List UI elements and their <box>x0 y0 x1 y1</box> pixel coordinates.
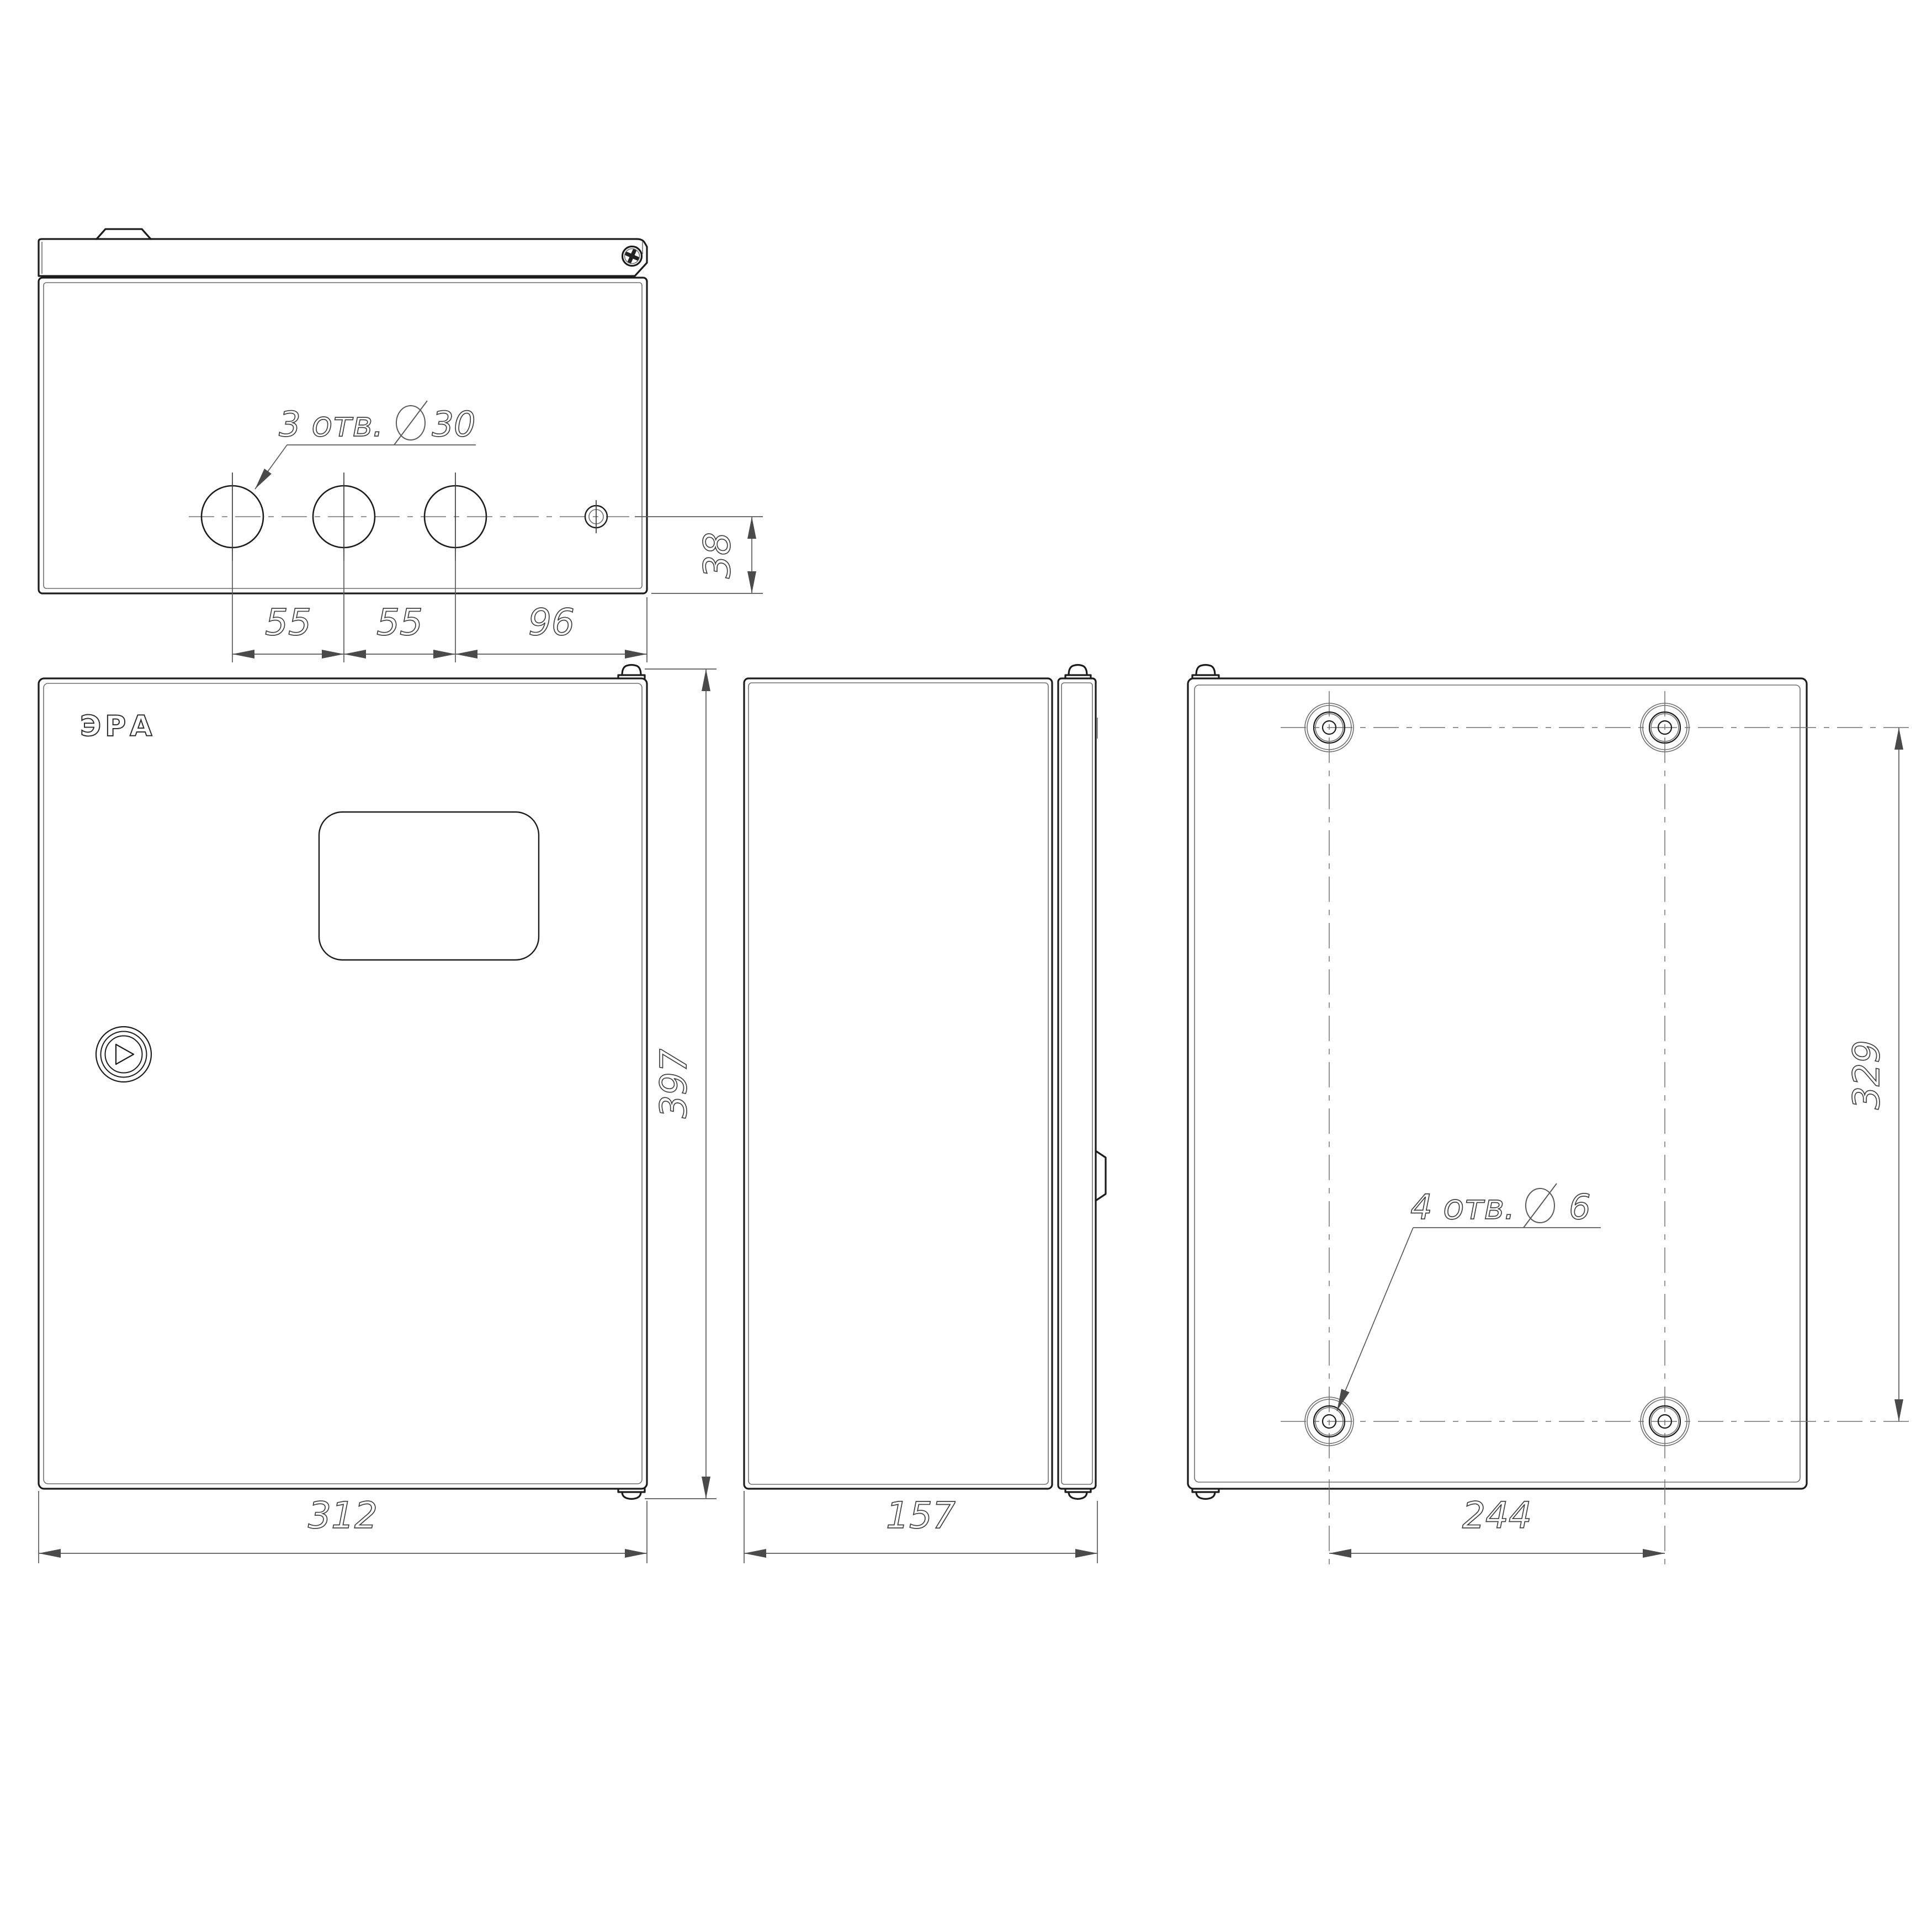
back-panel <box>1188 678 1807 1489</box>
side-door-leaf <box>1058 678 1096 1489</box>
back-hinge-foot-bottom <box>1192 1489 1219 1499</box>
front-door-panel-inner <box>44 683 642 1484</box>
door-handle <box>1096 1151 1106 1201</box>
back-panel-inner <box>1195 685 1800 1482</box>
diameter-symbol-icon <box>394 401 427 445</box>
dim-hole-row-offset: 38 <box>635 517 763 593</box>
dim-side-depth: 157 <box>744 1491 1097 1563</box>
back-hinge-knob-top <box>1192 665 1219 679</box>
diameter-symbol-icon <box>1524 1183 1557 1228</box>
top-view-hinge-knob <box>97 229 151 239</box>
front-hinge-knob-top <box>618 665 645 679</box>
dim-55-a: 55 <box>265 601 311 644</box>
back-holes-note: 4 отв. 6 <box>1337 1183 1601 1411</box>
top-holes-note-count: 3 отв. <box>279 404 383 444</box>
drawing-sheet: 3 отв. 30 55 55 96 38 <box>0 0 1932 1932</box>
back-view: 4 отв. 6 329 244 <box>1188 665 1911 1572</box>
drawing-canvas: 3 отв. 30 55 55 96 38 <box>0 0 1932 1932</box>
dim-397: 397 <box>652 1049 695 1118</box>
screw-head-icon <box>623 247 642 266</box>
back-holes-note-diameter: 6 <box>1569 1187 1590 1227</box>
back-holes-note-count: 4 отв. <box>1410 1187 1515 1227</box>
note-leader <box>255 445 287 489</box>
dim-front-width: 312 <box>39 1491 647 1563</box>
small-hole <box>585 500 607 533</box>
front-view: ЭРА 397 312 <box>39 665 716 1564</box>
side-view: 157 <box>744 665 1106 1564</box>
dim-244: 244 <box>1462 1494 1532 1537</box>
dim-38: 38 <box>696 532 739 578</box>
dim-back-pitch-horizontal: 244 <box>1329 1494 1665 1553</box>
dim-329: 329 <box>1845 1040 1888 1110</box>
meter-window <box>319 812 539 960</box>
dim-top-holes-pitch: 55 55 96 <box>232 556 647 662</box>
side-hinge-foot-bottom <box>1065 1489 1091 1499</box>
side-hinge-knob-top <box>1065 665 1091 679</box>
play-triangle-icon <box>116 1044 134 1064</box>
side-door-leaf-inner <box>1061 683 1092 1484</box>
front-hinge-foot-bottom <box>618 1489 645 1499</box>
front-door-panel <box>39 678 647 1489</box>
side-body <box>744 678 1052 1489</box>
brand-logo: ЭРА <box>80 710 156 743</box>
lock-button <box>96 1027 151 1082</box>
dim-55-b: 55 <box>376 601 423 644</box>
top-view-door-band <box>39 239 647 276</box>
top-holes-note: 3 отв. 30 <box>255 401 476 489</box>
side-body-inner <box>749 683 1048 1484</box>
top-view: 3 отв. 30 55 55 96 38 <box>39 229 763 662</box>
top-holes-note-diameter: 30 <box>432 404 476 444</box>
dim-back-pitch-vertical: 329 <box>1845 728 1899 1421</box>
dim-front-height: 397 <box>645 669 716 1499</box>
dim-312: 312 <box>308 1494 378 1537</box>
note-leader <box>1337 1228 1413 1411</box>
dim-96: 96 <box>528 601 575 644</box>
dim-157: 157 <box>886 1494 956 1537</box>
